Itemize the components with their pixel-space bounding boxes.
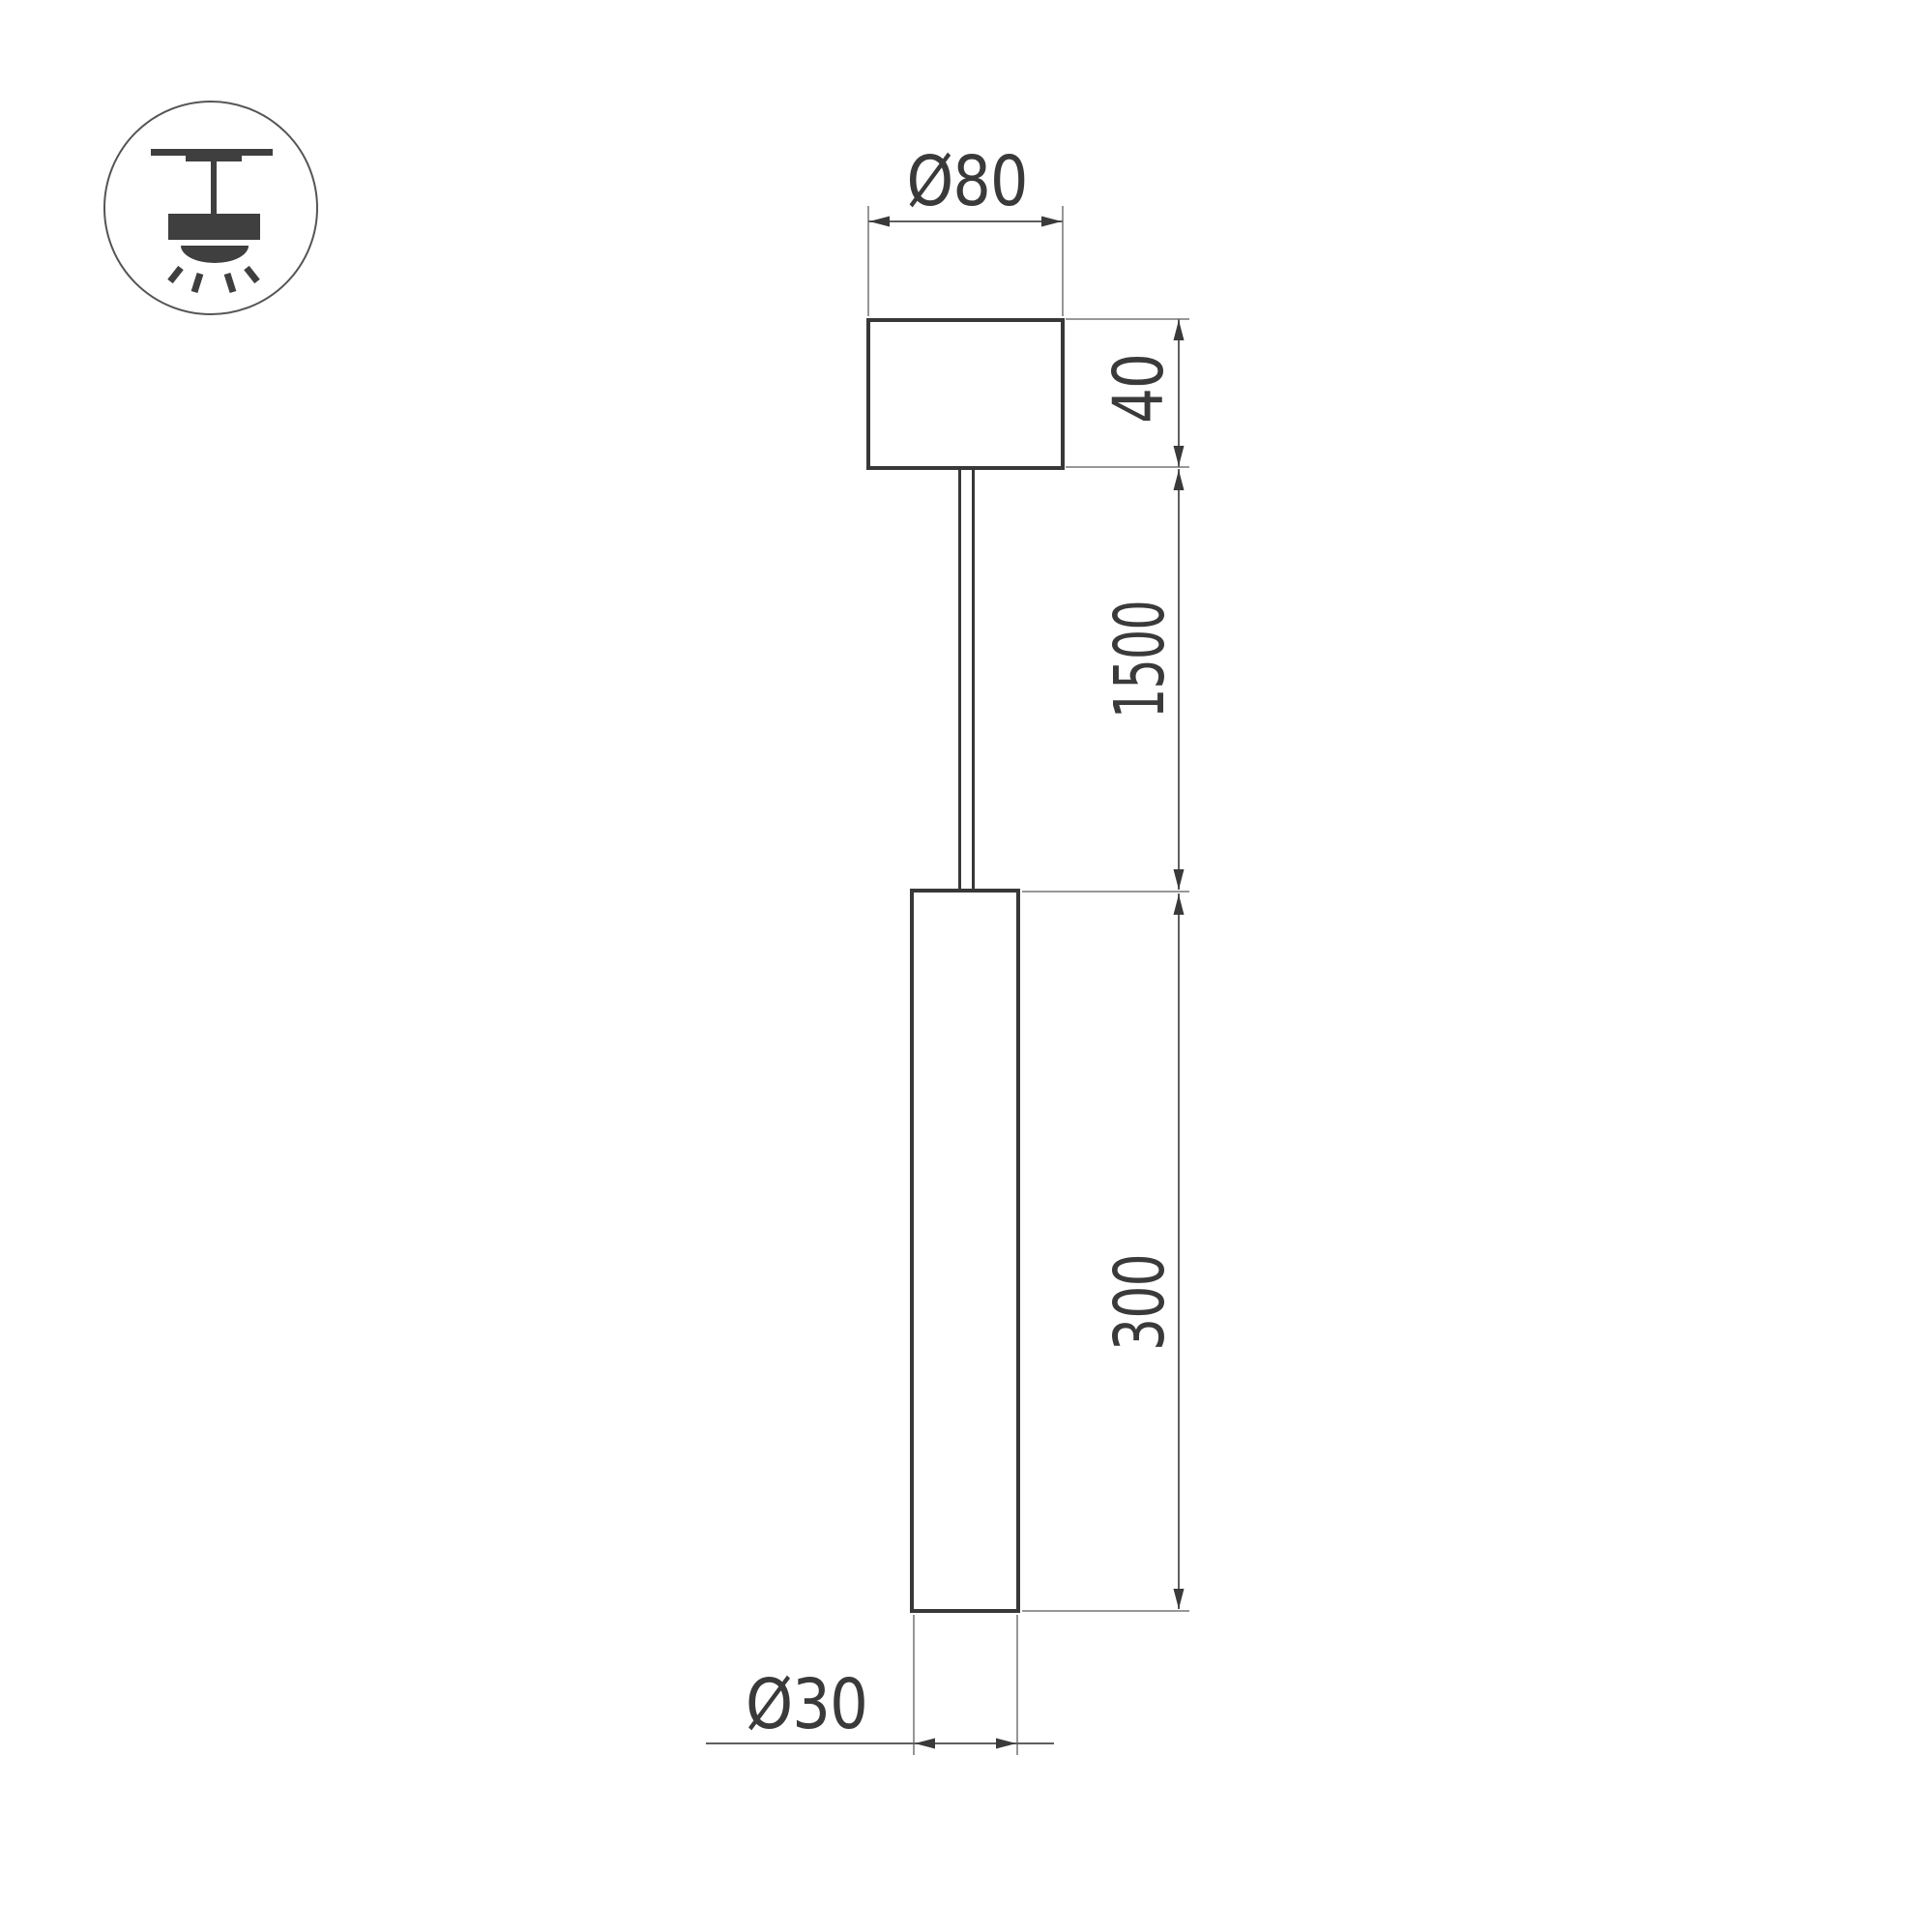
arrow-up-icon bbox=[1174, 894, 1185, 915]
label-canopy-height: 40 bbox=[1098, 354, 1179, 424]
arrow-up-icon bbox=[1174, 470, 1185, 490]
icon-ceiling-bar bbox=[151, 149, 273, 156]
arrow-left-icon bbox=[915, 1739, 935, 1749]
pendant-lamp-dimension-drawing: Ø80 40 1500 300 bbox=[0, 0, 1932, 1932]
label-tube-length: 300 bbox=[1099, 1254, 1180, 1351]
arrow-up-icon bbox=[1174, 320, 1185, 340]
dimension-canopy-height: 40 bbox=[1066, 319, 1189, 467]
lamp-outline bbox=[868, 320, 1063, 1611]
icon-lamp-diffuser-dome bbox=[181, 246, 249, 263]
dimension-tube-diameter: Ø30 bbox=[706, 1615, 1054, 1755]
suspension-cable bbox=[960, 468, 974, 891]
dimension-suspension-length: 1500 bbox=[1022, 469, 1189, 892]
arrow-right-icon bbox=[1041, 217, 1062, 227]
label-tube-diameter: Ø30 bbox=[746, 1664, 867, 1744]
arrow-down-icon bbox=[1174, 1589, 1185, 1609]
lamp-tube-rect bbox=[912, 891, 1018, 1611]
arrow-down-icon bbox=[1174, 446, 1185, 466]
label-suspension-length: 1500 bbox=[1099, 600, 1180, 718]
extension-lines-tube-diameter bbox=[914, 1615, 1017, 1755]
extension-lines-canopy-diameter bbox=[868, 206, 1063, 316]
arrow-right-icon bbox=[996, 1739, 1016, 1749]
dimension-canopy-diameter: Ø80 bbox=[868, 141, 1063, 316]
icon-suspension-rod bbox=[211, 161, 217, 215]
label-canopy-diameter: Ø80 bbox=[907, 141, 1028, 221]
icon-mount-plate bbox=[186, 156, 242, 161]
pendant-ceiling-light-icon bbox=[104, 102, 317, 314]
icon-light-rays bbox=[170, 268, 257, 292]
icon-lamp-body bbox=[168, 214, 260, 240]
canopy-rect bbox=[868, 320, 1063, 468]
arrow-left-icon bbox=[869, 217, 890, 227]
arrow-down-icon bbox=[1174, 869, 1185, 890]
technical-drawing-canvas: Ø80 40 1500 300 bbox=[0, 0, 1932, 1932]
dimension-tube-length: 300 bbox=[1022, 893, 1189, 1611]
